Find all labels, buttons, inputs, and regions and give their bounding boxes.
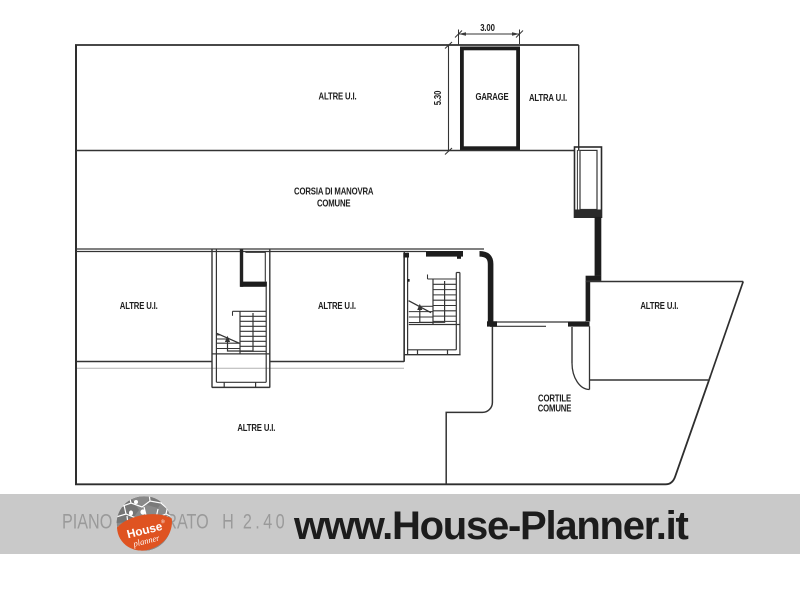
svg-text:ALTRE U.I.: ALTRE U.I. xyxy=(319,90,357,101)
svg-text:ALTRA U.I.: ALTRA U.I. xyxy=(529,92,567,103)
svg-text:COMUNE: COMUNE xyxy=(317,197,351,208)
svg-text:COMUNE: COMUNE xyxy=(538,403,572,414)
svg-text:ALTRE U.I.: ALTRE U.I. xyxy=(318,300,356,311)
svg-text:www.House-Planner.it: www.House-Planner.it xyxy=(293,504,689,548)
svg-text:CORSIA DI MANOVRA: CORSIA DI MANOVRA xyxy=(294,185,374,196)
svg-text:ALTRE U.I.: ALTRE U.I. xyxy=(237,422,275,433)
svg-text:PIANO INTERRATO H 2.40: PIANO INTERRATO H 2.40 xyxy=(62,509,288,533)
svg-text:ALTRE U.I.: ALTRE U.I. xyxy=(120,300,158,311)
svg-text:5.30: 5.30 xyxy=(432,91,443,106)
svg-text:ALTRE U.I.: ALTRE U.I. xyxy=(640,300,678,311)
svg-text:GARAGE: GARAGE xyxy=(475,91,508,102)
svg-text:3.00: 3.00 xyxy=(480,22,495,33)
